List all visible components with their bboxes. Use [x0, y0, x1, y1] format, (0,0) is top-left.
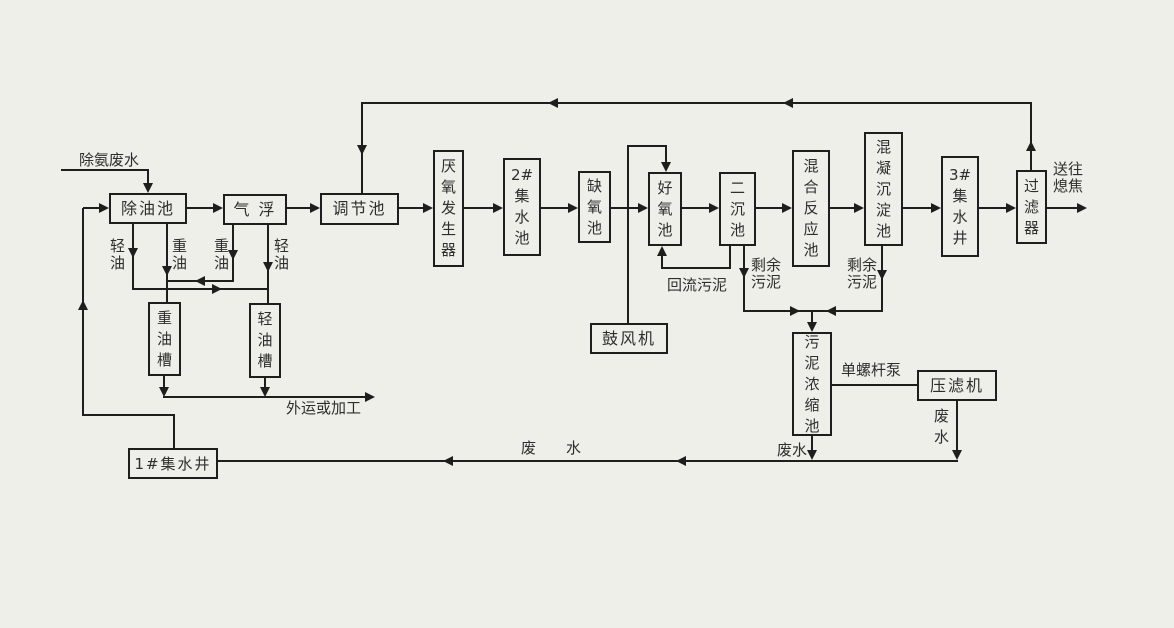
label-light-oil-left: 轻 油	[110, 238, 125, 272]
arrowhead-press-wastewater	[952, 450, 962, 460]
arrowhead-into-thickener	[807, 322, 817, 332]
line-equalization-anaerobic	[399, 207, 424, 209]
arrowhead-into-anoxic	[568, 203, 578, 213]
arrowhead-into-aerobic	[638, 203, 648, 213]
node-blower: 鼓风机	[590, 323, 668, 354]
node-anaerobic-generator: 厌 氧 发 生 器	[433, 150, 464, 267]
line-top-recycle	[361, 102, 1032, 104]
line-collect3-filter	[979, 207, 1007, 209]
label-single-screw-pump: 单螺杆泵	[841, 362, 901, 379]
node-coagulation-sedimentation-pool: 混 凝 沉 淀 池	[864, 132, 903, 246]
arrowhead-into-flotation	[213, 203, 223, 213]
label-excess-sludge-left: 剩余 污泥	[751, 257, 781, 291]
arrowhead-sludge-collector-right	[790, 306, 800, 316]
line-recycle-left-vertical	[82, 208, 84, 416]
line-collect2-anoxic	[541, 207, 569, 209]
arrowhead-bottom-wastewater-1	[676, 456, 686, 466]
arrowhead-air-into-aerobic	[661, 162, 671, 172]
line-return-sludge-down	[729, 246, 731, 269]
node-oil-removal-pool: 除油池	[109, 193, 187, 224]
arrowhead-heavy-oil-left	[162, 266, 172, 276]
line-flotation-equalization	[287, 207, 311, 209]
arrowhead-light-oil-crossover	[212, 284, 222, 294]
line-press-wastewater	[956, 401, 958, 452]
arrowhead-return-sludge	[657, 246, 667, 256]
node-secondary-clarifier: 二 沉 池	[719, 172, 756, 246]
node-air-flotation: 气 浮	[223, 194, 287, 225]
arrowhead-into-mixing	[782, 203, 792, 213]
arrowhead-into-filter	[1006, 203, 1016, 213]
node-collection-well-3: 3# 集 水 井	[941, 156, 979, 257]
node-filter-press: 压滤机	[917, 370, 997, 401]
arrowhead-into-oil-removal	[99, 203, 109, 213]
arrowhead-bottom-wastewater-2	[443, 456, 453, 466]
line-well1-riser	[173, 414, 175, 448]
arrowhead-light-oil-right	[263, 262, 273, 272]
arrowhead-output	[1077, 203, 1087, 213]
line-filter-riser	[1030, 102, 1032, 170]
label-light-oil-right: 轻 油	[274, 238, 289, 272]
line-bottom-wastewater	[218, 460, 958, 462]
label-excess-sludge-right: 剩余 污泥	[847, 257, 877, 291]
line-feed-horizontal	[61, 169, 149, 171]
node-collection-well-1: 1#集水井	[128, 448, 218, 479]
arrowhead-top-recycle-left-1	[783, 98, 793, 108]
line-return-sludge-horizontal	[661, 267, 731, 269]
label-wastewater-thickener: 废水	[777, 442, 807, 459]
arrowhead-into-coagulation	[854, 203, 864, 213]
line-transport	[163, 396, 366, 398]
node-heavy-oil-tank: 重 油 槽	[148, 302, 181, 376]
arrowhead-thickener-wastewater	[807, 450, 817, 460]
line-recycle-left-horizontal	[82, 414, 175, 416]
arrowhead-excess-sludge-left	[739, 268, 749, 278]
line-blower-riser	[627, 145, 629, 323]
line-blower-top	[627, 145, 667, 147]
node-sludge-thickener: 污 泥 浓 缩 池	[792, 332, 832, 436]
line-oilremoval-flotation	[187, 207, 214, 209]
line-clarifier-mixing	[756, 207, 783, 209]
arrowhead-filter-riser-up	[1026, 141, 1036, 151]
line-light-oil-crossover	[132, 288, 269, 290]
arrowhead-recycle-up	[78, 300, 88, 310]
node-equalization-pool: 调节池	[320, 193, 399, 225]
arrowhead-light-oil-left	[128, 248, 138, 258]
line-aerobic-clarifier	[682, 207, 710, 209]
arrowhead-heavy-oil-crossover	[195, 276, 205, 286]
line-heavy-oil-from-oilremoval	[166, 224, 168, 302]
node-collection-pool-2: 2# 集 水 池	[503, 158, 541, 256]
arrowhead-into-anaerobic	[423, 203, 433, 213]
arrowhead-excess-sludge-right	[877, 270, 887, 280]
label-transport-or-processing: 外运或加工	[286, 400, 361, 417]
label-heavy-oil-left: 重 油	[172, 238, 187, 272]
label-wastewater-press: 废 水	[934, 406, 949, 448]
line-coagulation-collect3	[903, 207, 932, 209]
arrowhead-top-recycle-left-2	[548, 98, 558, 108]
line-recycle-into-oil-removal	[83, 207, 100, 209]
arrowhead-sludge-collector-left	[826, 306, 836, 316]
arrowhead-into-clarifier	[709, 203, 719, 213]
label-ammonia-stripped-wastewater: 除氨废水	[79, 152, 139, 169]
label-wastewater-bottom: 废水	[521, 440, 611, 457]
line-sludge-collector	[743, 310, 883, 312]
label-to-coke-quenching: 送往 熄焦	[1053, 161, 1083, 195]
line-anaerobic-collect2	[464, 207, 494, 209]
line-anoxic-aerobic	[611, 207, 639, 209]
arrowhead-into-equalization-top	[357, 145, 367, 155]
process-flow-diagram: 除油池 气 浮 调节池 厌 氧 发 生 器 2# 集 水 池 缺 氧 池 好 氧…	[0, 0, 1174, 628]
arrowhead-into-equalization	[310, 203, 320, 213]
node-aerobic-pool: 好 氧 池	[648, 172, 682, 246]
node-light-oil-tank: 轻 油 槽	[249, 303, 281, 378]
arrowhead-feed-into-oil-removal	[143, 183, 153, 193]
node-anoxic-pool: 缺 氧 池	[578, 171, 611, 243]
line-mixing-coagulation	[830, 207, 855, 209]
line-filter-output	[1047, 207, 1077, 209]
line-screw-pump	[832, 384, 917, 386]
arrowhead-heavy-oil-right	[228, 250, 238, 260]
label-return-sludge: 回流污泥	[667, 277, 727, 294]
arrowhead-into-collect3	[931, 203, 941, 213]
line-excess-sludge-left	[743, 246, 745, 312]
label-heavy-oil-right: 重 油	[214, 238, 229, 272]
arrowhead-into-collect2	[493, 203, 503, 213]
node-mixing-reaction-pool: 混 合 反 应 池	[792, 150, 830, 267]
node-filter: 过 滤 器	[1016, 170, 1047, 244]
arrowhead-transport	[365, 392, 375, 402]
